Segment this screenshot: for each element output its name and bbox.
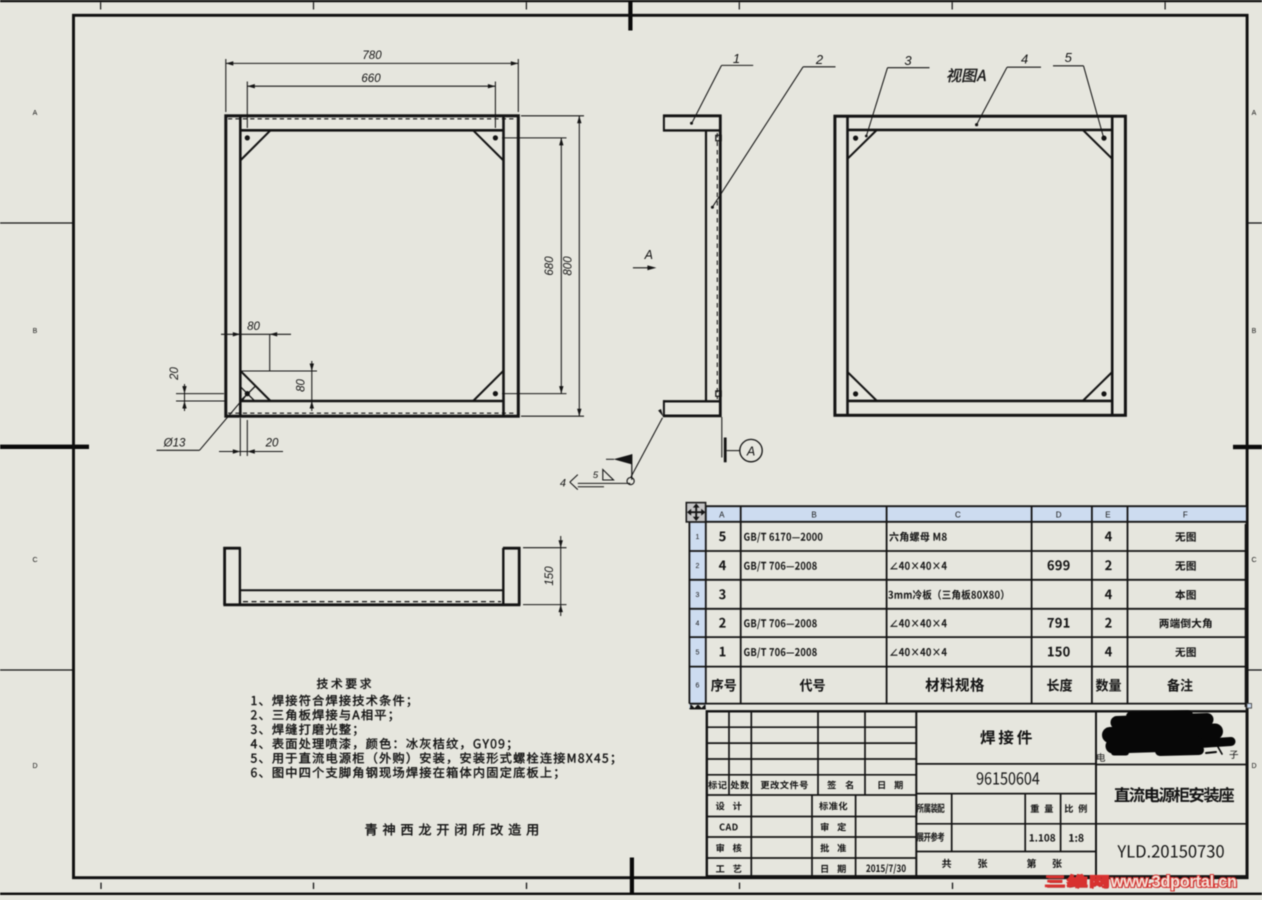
svg-text:5: 5 <box>1065 50 1073 65</box>
svg-text:Ø13: Ø13 <box>163 438 186 450</box>
svg-text:A: A <box>1252 110 1257 117</box>
svg-text:D: D <box>1251 763 1256 770</box>
svg-text:C: C <box>1251 557 1256 564</box>
svg-text:2: 2 <box>815 52 824 67</box>
svg-text:3: 3 <box>696 592 700 599</box>
svg-text:4: 4 <box>560 478 566 490</box>
svg-text:660: 660 <box>361 73 381 85</box>
svg-text:680: 680 <box>544 256 556 276</box>
svg-text:B: B <box>1252 328 1257 335</box>
svg-text:C: C <box>955 511 961 520</box>
svg-text:3: 3 <box>904 53 912 68</box>
svg-text:E: E <box>1105 511 1110 520</box>
svg-text:A: A <box>33 110 38 117</box>
svg-text:B: B <box>811 511 816 520</box>
svg-text:1: 1 <box>696 534 700 541</box>
svg-text:20: 20 <box>265 438 279 450</box>
svg-text:A: A <box>746 444 755 458</box>
svg-text:780: 780 <box>362 50 382 62</box>
svg-text:B: B <box>33 328 38 335</box>
svg-text:F: F <box>1183 511 1188 520</box>
svg-text:80: 80 <box>247 321 260 333</box>
svg-text:D: D <box>32 763 37 770</box>
svg-text:5: 5 <box>696 649 700 656</box>
svg-text:A: A <box>644 248 653 262</box>
svg-text:4: 4 <box>1021 52 1028 67</box>
svg-text:C: C <box>32 557 37 564</box>
svg-text:5: 5 <box>593 470 599 481</box>
svg-text:1: 1 <box>733 51 740 66</box>
svg-text:6: 6 <box>696 683 700 690</box>
svg-text:2: 2 <box>696 563 700 570</box>
svg-text:80: 80 <box>296 379 308 392</box>
svg-text:800: 800 <box>563 256 575 276</box>
svg-text:4: 4 <box>696 621 700 628</box>
svg-text:20: 20 <box>169 367 181 381</box>
svg-text:D: D <box>1056 511 1062 520</box>
svg-text:A: A <box>719 511 725 520</box>
svg-text:150: 150 <box>544 566 556 586</box>
svg-text:www.3dportal.cn: www.3dportal.cn <box>1110 873 1237 891</box>
